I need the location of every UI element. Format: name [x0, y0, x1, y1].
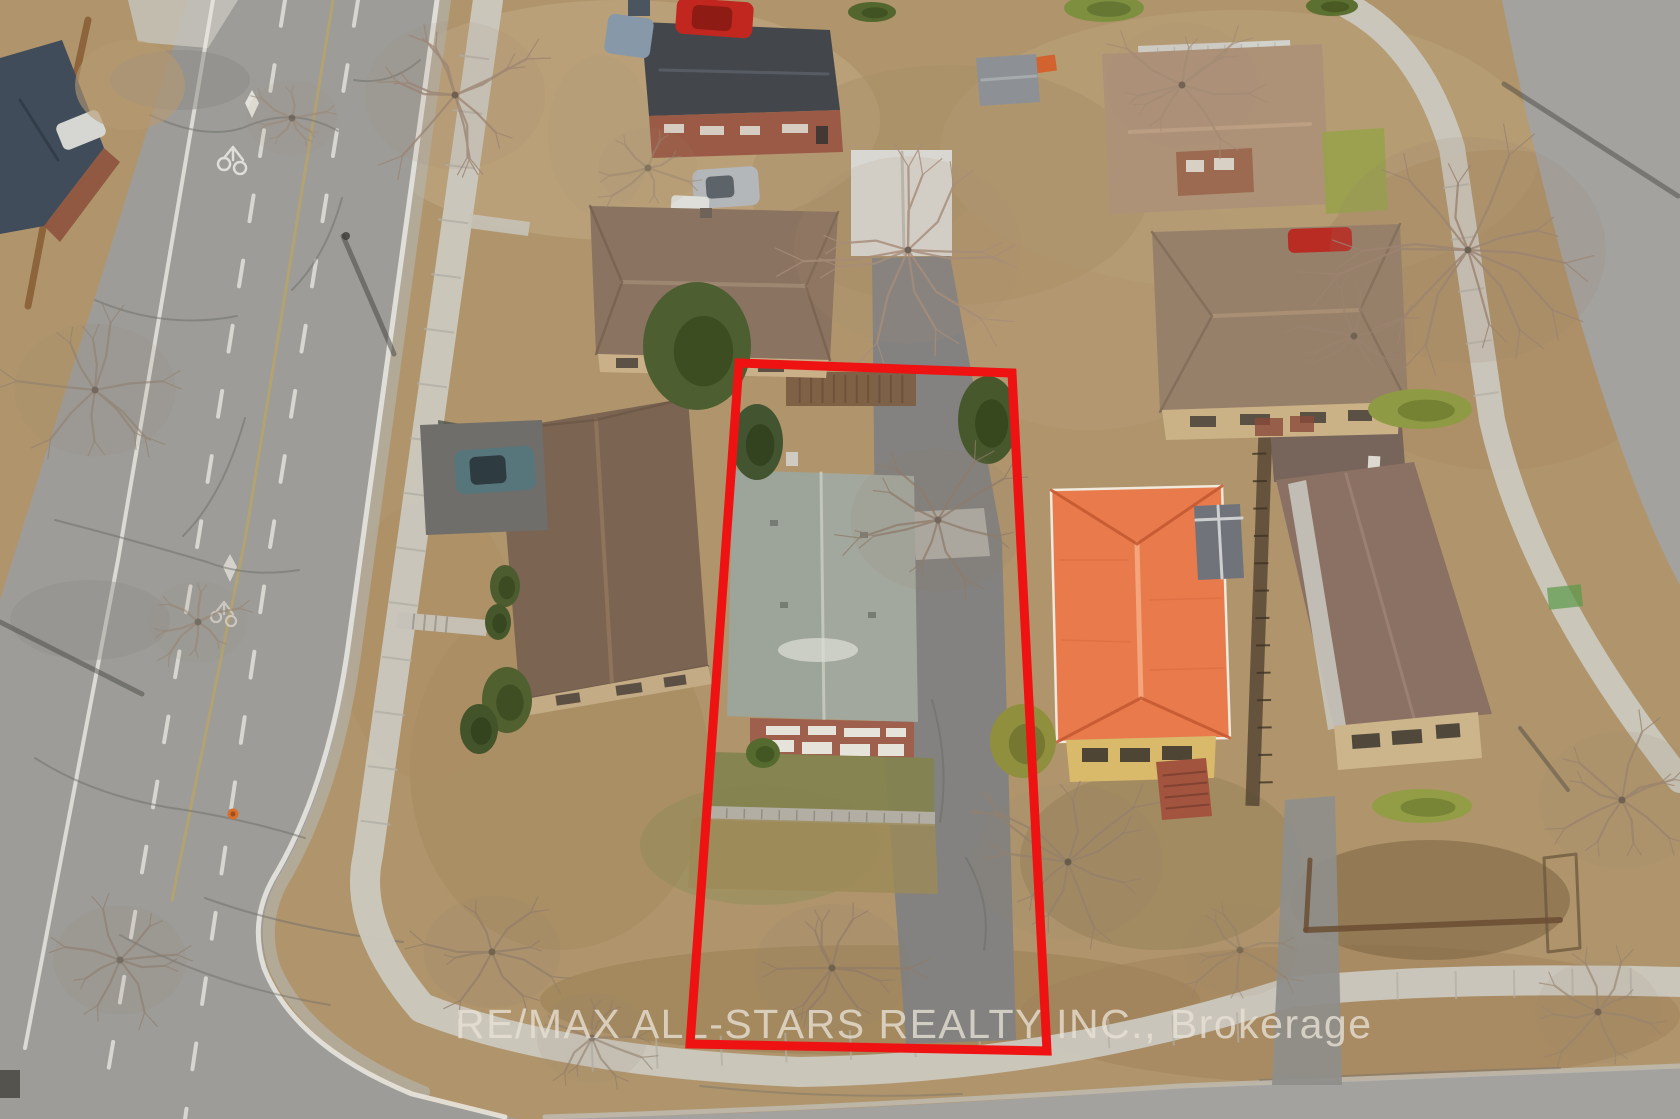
- road-patch: [10, 580, 170, 660]
- watermark-text: RE/MAX ALL-STARS REALTY INC., Brokerage: [455, 1001, 1373, 1047]
- front-steps: [1156, 758, 1212, 820]
- roof-highlight: [778, 638, 858, 662]
- bare-tree: [246, 81, 337, 156]
- window: [1436, 723, 1461, 739]
- window: [878, 744, 904, 756]
- utility-box: [0, 1070, 20, 1098]
- window: [740, 126, 760, 135]
- window: [616, 358, 638, 368]
- window: [1392, 729, 1423, 745]
- roof-vent: [770, 520, 778, 526]
- cedar-bush: [490, 565, 520, 607]
- window: [766, 726, 800, 735]
- car-red-roof: [691, 5, 733, 32]
- window: [700, 126, 724, 135]
- chimney: [700, 208, 712, 218]
- cedar-bush: [460, 704, 498, 754]
- window: [1120, 748, 1150, 762]
- roof-vent: [868, 612, 876, 618]
- window: [1186, 160, 1204, 172]
- window: [808, 726, 836, 735]
- window: [886, 728, 906, 737]
- green-tarp: [1547, 584, 1583, 609]
- roof-vent: [780, 602, 788, 608]
- scene-shapes: [0, 0, 1680, 1119]
- hedge: [848, 2, 896, 22]
- window: [1352, 733, 1381, 749]
- subject-roof-left-facet: [727, 470, 824, 720]
- chimney: [786, 452, 798, 466]
- lawn-patch: [75, 40, 185, 130]
- car-teal-glass: [469, 455, 507, 485]
- subject-front-lawn: [710, 752, 934, 814]
- window: [1082, 748, 1108, 762]
- car-blue: [603, 13, 654, 59]
- garden-bed: [1255, 418, 1283, 436]
- door: [816, 126, 828, 144]
- subject-lower-lawn: [688, 818, 938, 894]
- aerial-scene-svg: RE/MAX ALL-STARS REALTY INC., Brokerage: [0, 0, 1680, 1119]
- window: [1162, 746, 1192, 760]
- aerial-photo: RE/MAX ALL-STARS REALTY INC., Brokerage: [0, 0, 1680, 1119]
- trash-bins: [628, 0, 650, 16]
- window: [1190, 416, 1216, 427]
- window: [1214, 158, 1234, 170]
- yellow-bush: [990, 704, 1056, 778]
- front-shrub: [746, 738, 780, 768]
- utility-pole: [342, 232, 350, 240]
- fire-hydrant-cap: [231, 812, 236, 817]
- cedar-bush: [485, 604, 511, 640]
- window: [844, 728, 880, 737]
- window: [802, 742, 832, 754]
- window: [782, 124, 808, 133]
- window: [840, 744, 870, 756]
- garden-bed: [1290, 416, 1314, 432]
- window: [1348, 410, 1372, 421]
- hedge: [1368, 389, 1472, 429]
- hedge: [1372, 789, 1472, 823]
- car-silver-glass: [705, 175, 734, 199]
